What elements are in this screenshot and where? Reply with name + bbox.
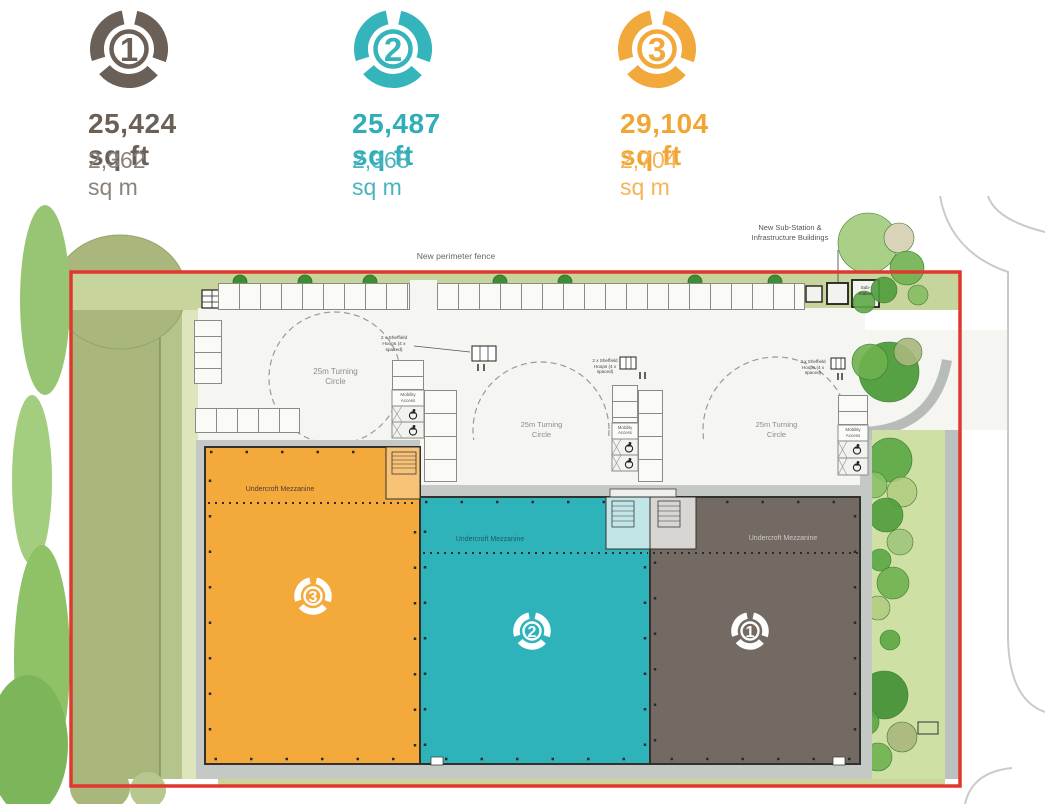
- parking-stack-left: [194, 320, 222, 384]
- unit1-mezzanine-label: Undercroft Mezzanine: [708, 535, 858, 542]
- unit1-core: [650, 497, 696, 549]
- verge-kerb-right: [945, 430, 960, 779]
- hoops-label-a: 2 x SheffieldHoops (4 xspaced): [374, 336, 414, 353]
- parking-col-c: [838, 395, 868, 425]
- site-plan-page: 1 25,424 sq ft 2,362 sq m 2 25,487 sq ft…: [0, 0, 1045, 804]
- hoops-label-b: 2 x SheffieldHoops (4 xspaced): [588, 358, 622, 375]
- hoops-label-c: 2 x SheffieldHoops (4 xspaced): [796, 359, 830, 376]
- parking-col-b-right: [638, 390, 663, 482]
- mobility-label-a: MobilityAccess: [392, 392, 424, 403]
- unit3-mezzanine-label: Undercroft Mezzanine: [205, 486, 355, 493]
- parking-col-b-left: [612, 385, 638, 423]
- unit2-core: [606, 497, 650, 549]
- turning-circle-1-label: 25m Turning Circle: [288, 367, 383, 387]
- unit2-plan-number: 2: [528, 624, 537, 641]
- perimeter-fence-label: New perimeter fence: [380, 251, 532, 261]
- mobility-label-b: MobilityAccess: [612, 425, 638, 436]
- driveway-gap: [410, 280, 437, 312]
- parking-row-west: [218, 283, 410, 310]
- ev-parking-row-left: [195, 408, 300, 433]
- unit1-plan-number: 1: [746, 624, 755, 641]
- parking-col-a-left: [392, 360, 424, 390]
- turning-circle-2-label: 25m Turning Circle: [494, 420, 589, 439]
- unit3-core: [386, 447, 420, 499]
- substation-label: New Sub-Station & Infrastructure Buildin…: [733, 223, 847, 243]
- parking-col-a-right: [424, 390, 457, 482]
- turning-circle-3-label: 25m Turning Circle: [729, 420, 824, 439]
- unit2-mezzanine-label: Undercroft Mezzanine: [415, 536, 565, 543]
- unit3-plan-number: 3: [309, 589, 318, 606]
- core-link-block: [610, 489, 676, 497]
- substation-box-label: Sub- Station: [852, 285, 879, 296]
- parking-row-east: [437, 283, 805, 310]
- mobility-label-c: MobilityAccess: [838, 427, 868, 438]
- site-plan-drawing: 3 2 1: [0, 0, 1045, 804]
